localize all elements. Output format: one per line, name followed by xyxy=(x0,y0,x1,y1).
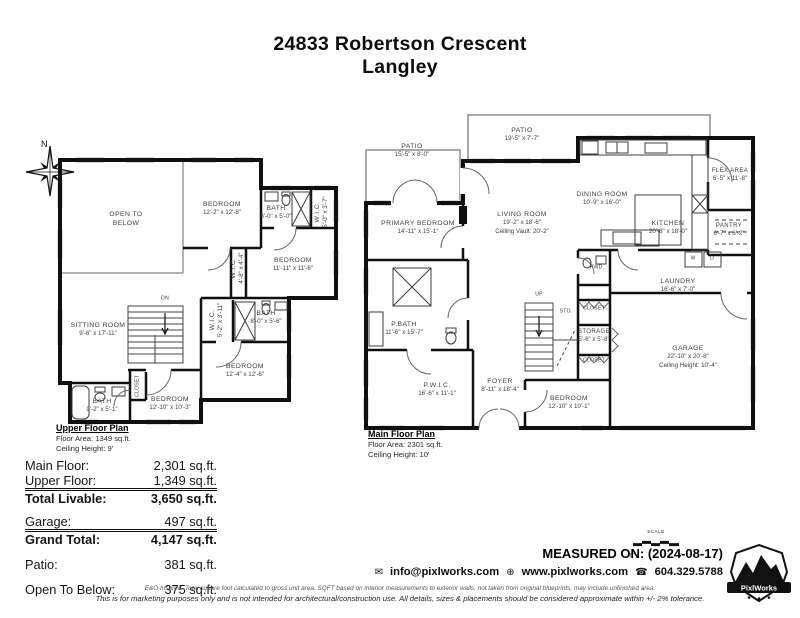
summary-row-main-floor: Main Floor: 2,301 sq.ft. xyxy=(25,458,217,473)
summary-row-grand-total: Grand Total: 4,147 sq.ft. xyxy=(25,532,217,547)
room-patio-2: PATIO 19'-5" x 7'-7" xyxy=(505,126,540,144)
room-closet-upper: CLOSET xyxy=(134,375,141,397)
summary-row-garage: Garage: 497 sq.ft. xyxy=(25,514,217,532)
room-living: LIVING ROOM 19'-2" x 18'-6" Ceiling Vaul… xyxy=(495,210,548,236)
scale-label: SCALE xyxy=(630,529,682,534)
phone-number: 604.329.5788 xyxy=(655,566,723,578)
upper-floor-plan-drawing xyxy=(46,150,346,425)
email-address: info@pixlworks.com xyxy=(390,566,499,578)
room-powder: PWD. xyxy=(590,264,604,271)
room-open-to-below: OPEN TO BELOW xyxy=(109,210,142,228)
summary-row-upper-floor: Upper Floor: 1,349 sq.ft. xyxy=(25,473,217,491)
contact-row: ✉ info@pixlworks.com ⊕ www.pixlworks.com… xyxy=(375,566,723,578)
room-laundry: LAUNDRY 16'-6" x 7'-0" xyxy=(660,277,695,295)
summary-row-patio: Patio: 381 sq.ft. xyxy=(25,557,217,572)
upper-plan-area: Floor Area: 1349 sq.ft. xyxy=(56,434,131,443)
room-bedroom-3: BEDROOM 12'-4" x 12'-6" xyxy=(226,362,264,380)
svg-text:N: N xyxy=(41,139,48,149)
room-closet-a: CLOSET xyxy=(583,305,605,312)
room-storage: STORAGE 5'-6" x 5'-8" xyxy=(578,328,610,344)
website-icon: ⊕ xyxy=(506,567,514,578)
room-kitchen: KITCHEN 20'-8" x 18'-0" xyxy=(649,219,687,237)
room-wic-2: W.I.C. 4'-8" x 4'-4" xyxy=(229,252,247,283)
washer-label: W xyxy=(690,255,695,262)
stairs-down-label: DN xyxy=(161,295,169,302)
main-floor-plan-info: Main Floor Plan Floor Area: 2301 sq.ft. … xyxy=(368,429,443,459)
measured-on-date: MEASURED ON: (2024-08-17) xyxy=(542,546,723,561)
room-wic-1: W.I.C. 5'-0" x 3'-7" xyxy=(313,196,331,227)
room-bath-3: BATH 9'-2" x 5'-1" xyxy=(86,397,117,415)
room-flex-area: FLEX AREA 6'-5" x 11'-8" xyxy=(712,167,748,183)
upper-plan-title: Upper Floor Plan xyxy=(56,423,131,433)
dryer-label: D xyxy=(710,255,714,262)
room-foyer: FOYER 8'-11" x 18'-4" xyxy=(481,377,519,395)
main-plan-ceiling: Ceiling Height: 10' xyxy=(368,450,443,459)
upper-floor-plan-info: Upper Floor Plan Floor Area: 1349 sq.ft.… xyxy=(56,423,131,453)
room-wic-3: W.I.C. 5'-2" x 3'-11" xyxy=(208,303,226,337)
room-bedroom-1: BEDROOM 12'-2" x 12'-8" xyxy=(203,200,241,218)
area-summary-table: Main Floor: 2,301 sq.ft. Upper Floor: 1,… xyxy=(25,458,217,597)
room-bedroom-5: BEDROOM 12'-10" x 10'-1" xyxy=(548,394,590,412)
main-plan-area: Floor Area: 2301 sq.ft. xyxy=(368,440,443,449)
room-bath-2: BATH 8'-0" x 5'-6" xyxy=(250,309,281,327)
room-primary-bedroom: PRIMARY BEDROOM 14'-11" x 15'-1" xyxy=(381,219,455,237)
email-icon: ✉ xyxy=(375,567,383,578)
page-title: 24833 Robertson Crescent Langley xyxy=(0,33,800,79)
room-bath-1: BATH 8'-0" x 5'-0" xyxy=(260,204,291,222)
upper-plan-ceiling: Ceiling Height: 9' xyxy=(56,444,131,453)
room-bedroom-4: BEDROOM 12'-10" x 10'-3" xyxy=(149,395,191,413)
website-url: www.pixlworks.com xyxy=(522,566,629,578)
address-line: 24833 Robertson Crescent xyxy=(0,33,800,56)
phone-icon: ☎ xyxy=(635,567,647,578)
disclaimer-line-1: E&O Insured. Total square foot calculate… xyxy=(0,585,800,592)
room-closet-b: CLOSET xyxy=(583,357,605,364)
room-sitting: SITTING ROOM 9'-6" x 17'-11" xyxy=(71,321,126,339)
room-bedroom-2: BEDROOM 11'-11" x 11'-6" xyxy=(273,256,313,274)
room-pantry: PANTRY 6'-7" x 6'-2" xyxy=(713,222,744,238)
city-line: Langley xyxy=(0,56,800,79)
stairs-up-label: UP xyxy=(535,291,543,298)
room-patio-1: PATIO 15'-5" x 8'-0" xyxy=(395,142,430,160)
room-primary-wic: P.W.I.C. 16'-6" x 11'-1" xyxy=(418,381,456,399)
main-plan-title: Main Floor Plan xyxy=(368,429,443,439)
room-sto: STO. xyxy=(560,308,573,315)
room-primary-bath: P.BATH 11'-6" x 15'-7" xyxy=(385,320,423,338)
disclaimer-line-2: This is for marketing purposes only and … xyxy=(0,594,800,603)
room-garage: GARAGE 22'-10" x 20'-8" Ceiling Height: … xyxy=(659,344,717,370)
room-dining: DINING ROOM 10'-9" x 16'-0" xyxy=(576,190,627,208)
summary-row-total-livable: Total Livable: 3,650 sq.ft. xyxy=(25,491,217,506)
floor-plan-sheet: 24833 Robertson Crescent Langley N xyxy=(0,0,800,618)
